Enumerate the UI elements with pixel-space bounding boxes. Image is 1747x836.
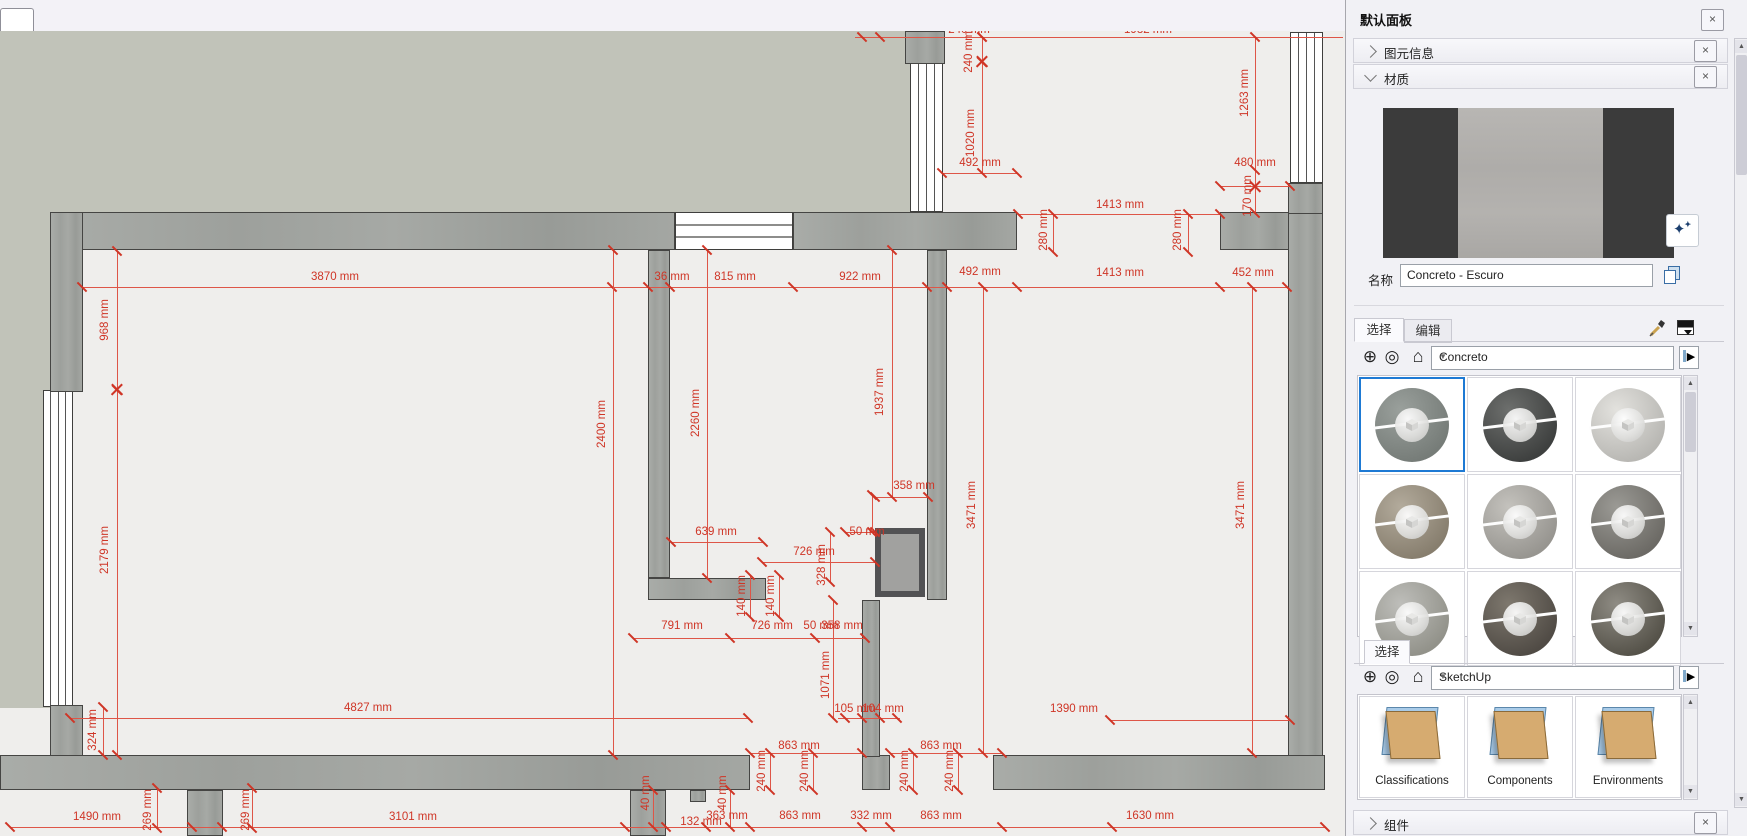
material-thumbnail-concrete-light-smooth[interactable]: [1575, 377, 1681, 472]
name-label: 名称: [1368, 270, 1393, 289]
exterior-ground: [0, 31, 910, 212]
folder-icon: [1486, 707, 1550, 761]
dimension-line: [1252, 287, 1253, 753]
material-thumbnail-concrete-gray[interactable]: [1359, 377, 1465, 472]
material-thumbnail-concrete-coarse-dark[interactable]: [1575, 571, 1681, 666]
wall-segment: [690, 790, 706, 802]
dimension-label: 269 mm: [142, 789, 154, 831]
dimension-label: 726 mm: [793, 546, 835, 558]
dimension-line: [750, 575, 751, 617]
scroll-down-icon[interactable]: ▼: [1684, 785, 1697, 798]
dimension-label: 240 mm: [944, 750, 956, 792]
material-thumbnail-concrete-mid-gray[interactable]: [1575, 474, 1681, 569]
browser-detail-button[interactable]: ▶: [1679, 666, 1699, 689]
dimension-label: 1413 mm: [1096, 267, 1144, 279]
dimension-label: 328 mm: [816, 544, 828, 586]
scroll-down-icon[interactable]: ▼: [1684, 622, 1697, 635]
dimension-label: 863 mm: [920, 810, 962, 822]
materials-close-button[interactable]: ×: [1694, 66, 1717, 88]
dimension-label: 968 mm: [99, 299, 111, 341]
dimension-label: 332 mm: [850, 810, 892, 822]
dimension-label: 1937 mm: [874, 368, 886, 416]
dimension-label: 791 mm: [661, 620, 703, 632]
material-thumbnail-concrete-speckled-tan[interactable]: [1359, 474, 1465, 569]
wall-segment: [993, 755, 1325, 790]
dimension-label: 726 mm: [751, 620, 793, 632]
materials-grid: [1357, 375, 1682, 637]
dimension-line: [958, 753, 959, 790]
dimension-label: 1413 mm: [1096, 199, 1144, 211]
chevron-down-icon: ▼: [1439, 352, 1667, 361]
dimension-label: 480 mm: [1234, 157, 1276, 169]
dimension-line: [913, 753, 914, 790]
panel-close-button[interactable]: ×: [1701, 9, 1724, 31]
window-symbol: [910, 62, 943, 212]
dimension-label: 140 mm: [736, 575, 748, 617]
dimension-x-mark: [110, 383, 125, 398]
dimension-label: 492 mm: [959, 266, 1001, 278]
home-icon[interactable]: ⌂: [1408, 667, 1428, 687]
dimension-label: 280 mm: [1038, 209, 1050, 251]
dimension-label: 1490 mm: [73, 811, 121, 823]
wall-segment: [0, 755, 750, 790]
dimension-label: 50 mm: [849, 526, 884, 538]
material-sphere: [1483, 582, 1557, 656]
dimension-label: 363 mm: [706, 810, 748, 822]
dimension-line: [653, 790, 654, 827]
folder-front: [1601, 711, 1656, 759]
material-preview: ✦✦: [1383, 108, 1674, 258]
dimension-label: 639 mm: [695, 526, 737, 538]
dimension-label: 1630 mm: [1126, 810, 1174, 822]
dimension-label: 240 mm: [756, 750, 768, 792]
dimension-line: [770, 753, 771, 790]
folder-cell-classifications[interactable]: Classifications: [1359, 696, 1465, 798]
default-tray-panel: 默认面板 × 图元信息 × 材质 × ✦✦ 名称 Concreto - Escu…: [1345, 0, 1747, 836]
dimension-line: [613, 250, 614, 755]
material-thumbnail-concrete-cobble-dark[interactable]: [1467, 377, 1573, 472]
window-symbol: [1290, 32, 1323, 183]
wall-segment: [793, 212, 1017, 250]
panel-scrollbar[interactable]: ▲ ▼: [1734, 38, 1747, 808]
top-left-tab[interactable]: [0, 8, 34, 32]
dimension-label: 3471 mm: [966, 481, 978, 529]
folders-grid: ClassificationsComponentsEnvironments: [1357, 694, 1682, 800]
browser-collection-dropdown[interactable]: SketchUp ▼: [1431, 666, 1674, 690]
section-materials[interactable]: 材质: [1353, 64, 1728, 89]
material-sphere: [1375, 388, 1449, 462]
wall-segment: [927, 250, 947, 600]
dimension-label: 863 mm: [779, 810, 821, 822]
dimension-line: [855, 37, 1343, 38]
dimension-line: [833, 600, 834, 718]
application-window: ... × 3870 mm36 mm815 mm922 mm492 mm: [0, 0, 1747, 836]
section-label: 材质: [1384, 69, 1409, 88]
dimension-label: 2260 mm: [690, 389, 702, 437]
material-name-input[interactable]: Concreto - Escuro: [1400, 264, 1653, 287]
dimension-label: 36 mm: [654, 271, 689, 283]
dimension-line: [1110, 720, 1290, 721]
wall-segment: [905, 31, 945, 64]
dimension-line: [633, 638, 865, 639]
components-close-button[interactable]: ×: [1694, 812, 1717, 834]
copy-icon[interactable]: [1664, 266, 1680, 282]
tab-select[interactable]: 选择: [1354, 318, 1404, 342]
dimension-label: 269 mm: [240, 789, 252, 831]
sample-display-icon[interactable]: [1677, 320, 1694, 335]
dimension-label: 1071 mm: [820, 651, 832, 699]
dimension-label: 3870 mm: [311, 271, 359, 283]
folder-cell-environments[interactable]: Environments: [1575, 696, 1681, 798]
dimension-label: 104 mm: [862, 703, 904, 715]
dimension-label: 240 mm: [899, 750, 911, 792]
dimension-line: [252, 788, 253, 828]
wall-segment: [1288, 213, 1323, 790]
tab-select-secondary[interactable]: 选择: [1364, 640, 1410, 664]
material-collection-dropdown[interactable]: Concreto ▼: [1431, 346, 1674, 370]
target-icon[interactable]: ◎: [1382, 668, 1402, 688]
scroll-up-icon[interactable]: ▲: [1735, 40, 1747, 53]
wall-segment: [50, 212, 675, 250]
dimension-line: [779, 575, 780, 617]
wall-segment: [862, 600, 880, 757]
dimension-label: 4827 mm: [344, 702, 392, 714]
dimension-line: [671, 542, 763, 543]
dimension-label: 280 mm: [1172, 209, 1184, 251]
folder-front: [1385, 711, 1440, 759]
entity-info-close-button[interactable]: ×: [1694, 40, 1717, 62]
folder-label: Components: [1468, 775, 1572, 787]
create-material-icon[interactable]: ⊕: [1360, 348, 1380, 368]
dimension-label: 40 mm: [640, 775, 652, 810]
chevron-right-icon: [1364, 817, 1377, 830]
folder-cell-components[interactable]: Components: [1467, 696, 1573, 798]
dimension-line: [1053, 214, 1054, 252]
dimension-label: 358 mm: [821, 620, 863, 632]
section-entity-info[interactable]: 图元信息: [1353, 38, 1728, 63]
dimension-line: [892, 250, 893, 497]
dimension-label: 240 mm: [799, 750, 811, 792]
panel-title: 默认面板: [1360, 10, 1412, 29]
eyedropper-icon[interactable]: [1648, 318, 1668, 338]
stairs-symbol: [675, 212, 793, 250]
dimension-label: 922 mm: [839, 271, 881, 283]
materials-grid-scrollbar[interactable]: ▲ ▼: [1683, 375, 1698, 637]
dimension-label: 2400 mm: [596, 400, 608, 448]
dimension-label: 1020 mm: [965, 109, 977, 157]
wall-segment: [50, 212, 83, 392]
folder-front: [1493, 711, 1548, 759]
dimension-line: [82, 287, 1287, 288]
dimension-line: [1188, 214, 1189, 252]
dimension-line: [942, 173, 1017, 174]
wall-segment: [648, 578, 766, 600]
folders-grid-scrollbar[interactable]: ▲ ▼: [1683, 694, 1698, 800]
chevron-right-icon: [1364, 45, 1377, 58]
material-preview-texture: [1458, 108, 1603, 258]
tab-edit[interactable]: 编辑: [1404, 319, 1452, 343]
dimension-label: 452 mm: [1232, 267, 1274, 279]
section-label: 组件: [1384, 815, 1409, 834]
dimension-label: 1982 mm: [1124, 31, 1172, 36]
dimension-line: [875, 497, 928, 498]
dimension-line: [70, 718, 748, 719]
folder-label: Classifications: [1360, 775, 1464, 787]
chevron-down-icon: [1364, 69, 1377, 82]
material-thumbnail-concrete-light-gray[interactable]: [1467, 474, 1573, 569]
drawing-canvas[interactable]: ... × 3870 mm36 mm815 mm922 mm492 mm: [0, 31, 1345, 836]
folder-icon: [1378, 707, 1442, 761]
material-sphere: [1375, 485, 1449, 559]
dimension-label: 2179 mm: [99, 526, 111, 574]
dimension-line: [103, 707, 104, 755]
material-thumbnail-concrete-dark-brown[interactable]: [1467, 571, 1573, 666]
dimension-label: 1390 mm: [1050, 703, 1098, 715]
scroll-up-icon[interactable]: ▲: [1684, 377, 1697, 390]
dimension-label: 240 mm: [963, 31, 975, 73]
dimension-label: 324 mm: [87, 709, 99, 751]
home-icon[interactable]: ⌂: [1408, 347, 1428, 367]
wall-segment: [1220, 212, 1290, 250]
dimension-label: 40 mm: [717, 775, 729, 810]
wall-segment: [862, 755, 890, 790]
dimension-label: 1263 mm: [1239, 69, 1251, 117]
dimension-line: [157, 788, 158, 828]
dimension-label: 170 mm: [1242, 175, 1254, 217]
material-sphere: [1483, 485, 1557, 559]
folder-label: Environments: [1576, 775, 1680, 787]
create-item-icon[interactable]: ⊕: [1360, 668, 1380, 688]
material-sphere: [1591, 388, 1665, 462]
set-default-material-icon[interactable]: ◎: [1382, 348, 1402, 368]
dimension-line: [813, 753, 814, 790]
window-symbol: [43, 390, 73, 707]
scroll-down-icon[interactable]: ▼: [1735, 793, 1747, 806]
dimension-label: 492 mm: [959, 157, 1001, 169]
dimension-line: [983, 287, 984, 753]
collection-detail-button[interactable]: ▶: [1679, 346, 1699, 369]
material-sphere: [1591, 582, 1665, 656]
dimension-label: 815 mm: [714, 271, 756, 283]
dimension-x-mark: [975, 55, 990, 70]
material-sphere: [1591, 485, 1665, 559]
dimension-label: 3471 mm: [1235, 481, 1247, 529]
chevron-down-icon: ▼: [1439, 672, 1667, 681]
section-label: 图元信息: [1384, 43, 1434, 62]
section-components[interactable]: 组件: [1353, 810, 1728, 835]
dimension-label: 3101 mm: [389, 811, 437, 823]
folder-icon: [1594, 707, 1658, 761]
dimension-line: [117, 251, 118, 755]
wall-segment: [648, 250, 670, 578]
scroll-up-icon[interactable]: ▲: [1684, 696, 1697, 709]
dimension-label: 140 mm: [765, 575, 777, 617]
generate-texture-button[interactable]: ✦✦: [1666, 214, 1699, 247]
material-sphere: [1483, 388, 1557, 462]
dimension-label: 358 mm: [893, 480, 935, 492]
shaft-symbol: [875, 528, 925, 597]
